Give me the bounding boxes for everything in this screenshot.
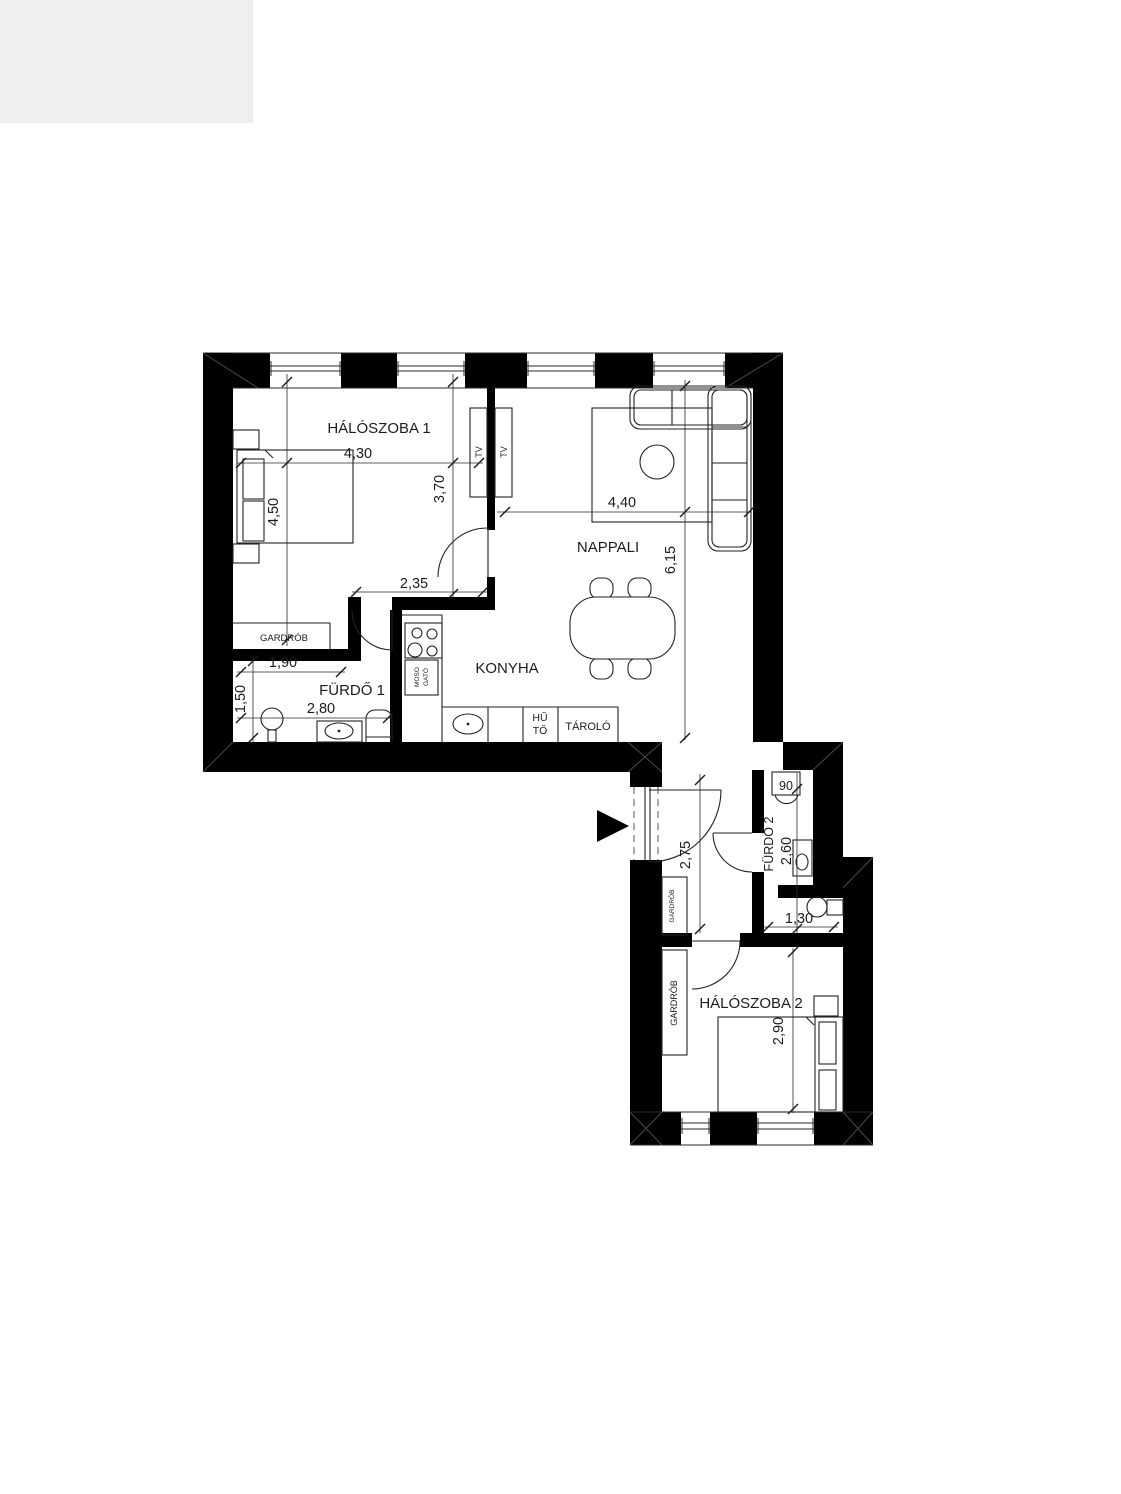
room-label-bedroom2: HÁLÓSZOBA 2	[699, 995, 802, 1012]
coffee-table	[640, 445, 674, 479]
dim-living-depth: 6,15	[663, 546, 679, 574]
bed-2-pillow-bottom	[819, 1070, 836, 1110]
bed-2-pillow-top	[819, 1022, 836, 1064]
dim-bedroom2-depth: 2,90	[771, 1017, 787, 1045]
nightstand-1b	[233, 544, 259, 563]
page-corner-tint	[0, 0, 253, 123]
dim-bedroom1-depth: 4,50	[266, 498, 282, 526]
door-bedroom1	[438, 528, 488, 577]
washbasin-2-bowl	[775, 795, 798, 804]
dim-bath1-bottom: 2,80	[307, 701, 335, 717]
dining-set	[570, 578, 675, 679]
room-label-kitchen: KONYHA	[475, 660, 538, 677]
entry-arrow-icon	[597, 810, 629, 842]
label-fridge-2: TŐ	[533, 723, 548, 737]
label-tv-living: TV	[499, 446, 509, 458]
dim-bedroom1-width: 4,30	[344, 446, 372, 462]
dining-table	[570, 597, 675, 659]
door-bedroom2	[692, 941, 740, 989]
room-label-bathroom2: FÜRDŐ 2	[761, 817, 776, 872]
dim-bedroom1-south: 2,35	[400, 576, 428, 592]
dim-bedroom1-east: 3,70	[432, 475, 448, 503]
label-wardrobe-bedroom2: GARDRÓB	[669, 980, 679, 1026]
dim-bath2-wc: 1,30	[785, 911, 813, 927]
label-sink-cabinet-2: GATÓ	[421, 668, 430, 686]
nightstand-2	[814, 996, 838, 1016]
bed-1	[237, 450, 353, 543]
dim-bath1-top: 1,90	[269, 655, 297, 671]
nightstand-1a	[233, 430, 259, 449]
dim-living-width: 4,40	[608, 495, 636, 511]
bed-2-fold-mark	[806, 1017, 814, 1025]
label-storage: TÁROLÓ	[565, 720, 611, 733]
window-bedroom1-left	[270, 361, 341, 376]
label-washbasin-90: 90	[779, 779, 793, 793]
sink-cabinet	[405, 660, 438, 695]
label-wardrobe-bedroom1: GARDRÓB	[260, 633, 308, 644]
bed-1-pillow-top	[243, 459, 264, 499]
chair	[628, 658, 651, 679]
toilet-1	[261, 708, 283, 730]
room-label-living: NAPPALI	[577, 539, 639, 556]
furniture-bedroom1	[233, 408, 512, 649]
window-living-left	[527, 361, 595, 376]
window-bedroom1-right	[397, 361, 465, 376]
label-sink-cabinet-1: MOSO	[414, 667, 421, 687]
floor-plan-page: HÁLÓSZOBA 1 NAPPALI KONYHA FÜRDŐ 1 HÁLÓS…	[0, 0, 1121, 1494]
room-label-bedroom1: HÁLÓSZOBA 1	[327, 420, 430, 437]
window-bedroom2-right	[757, 1118, 814, 1134]
bed-1-fold-mark	[265, 450, 273, 458]
furniture-living	[570, 386, 751, 679]
chair	[590, 578, 613, 599]
label-fridge-1: HŰ	[532, 710, 547, 724]
bed-1-pillow-bottom	[243, 501, 264, 541]
shower-tray	[793, 840, 812, 876]
dim-bath1-left: 1,50	[233, 685, 249, 713]
chair	[590, 658, 613, 679]
floor-plan-drawing: HÁLÓSZOBA 1 NAPPALI KONYHA FÜRDŐ 1 HÁLÓS…	[0, 0, 1121, 1494]
label-wardrobe-hall: GARDRÓB	[667, 890, 676, 923]
dim-bath2-depth: 2,60	[779, 837, 795, 865]
door-bathroom2	[713, 833, 752, 872]
room-label-bathroom1: FÜRDŐ 1	[319, 681, 385, 699]
dim-hall-depth: 2,75	[678, 841, 694, 869]
window-living-right	[653, 361, 725, 376]
window-bedroom2-left	[681, 1118, 710, 1134]
chair	[628, 578, 651, 599]
furniture-bedroom2	[662, 950, 843, 1112]
label-tv-bedroom: TV	[474, 446, 484, 458]
